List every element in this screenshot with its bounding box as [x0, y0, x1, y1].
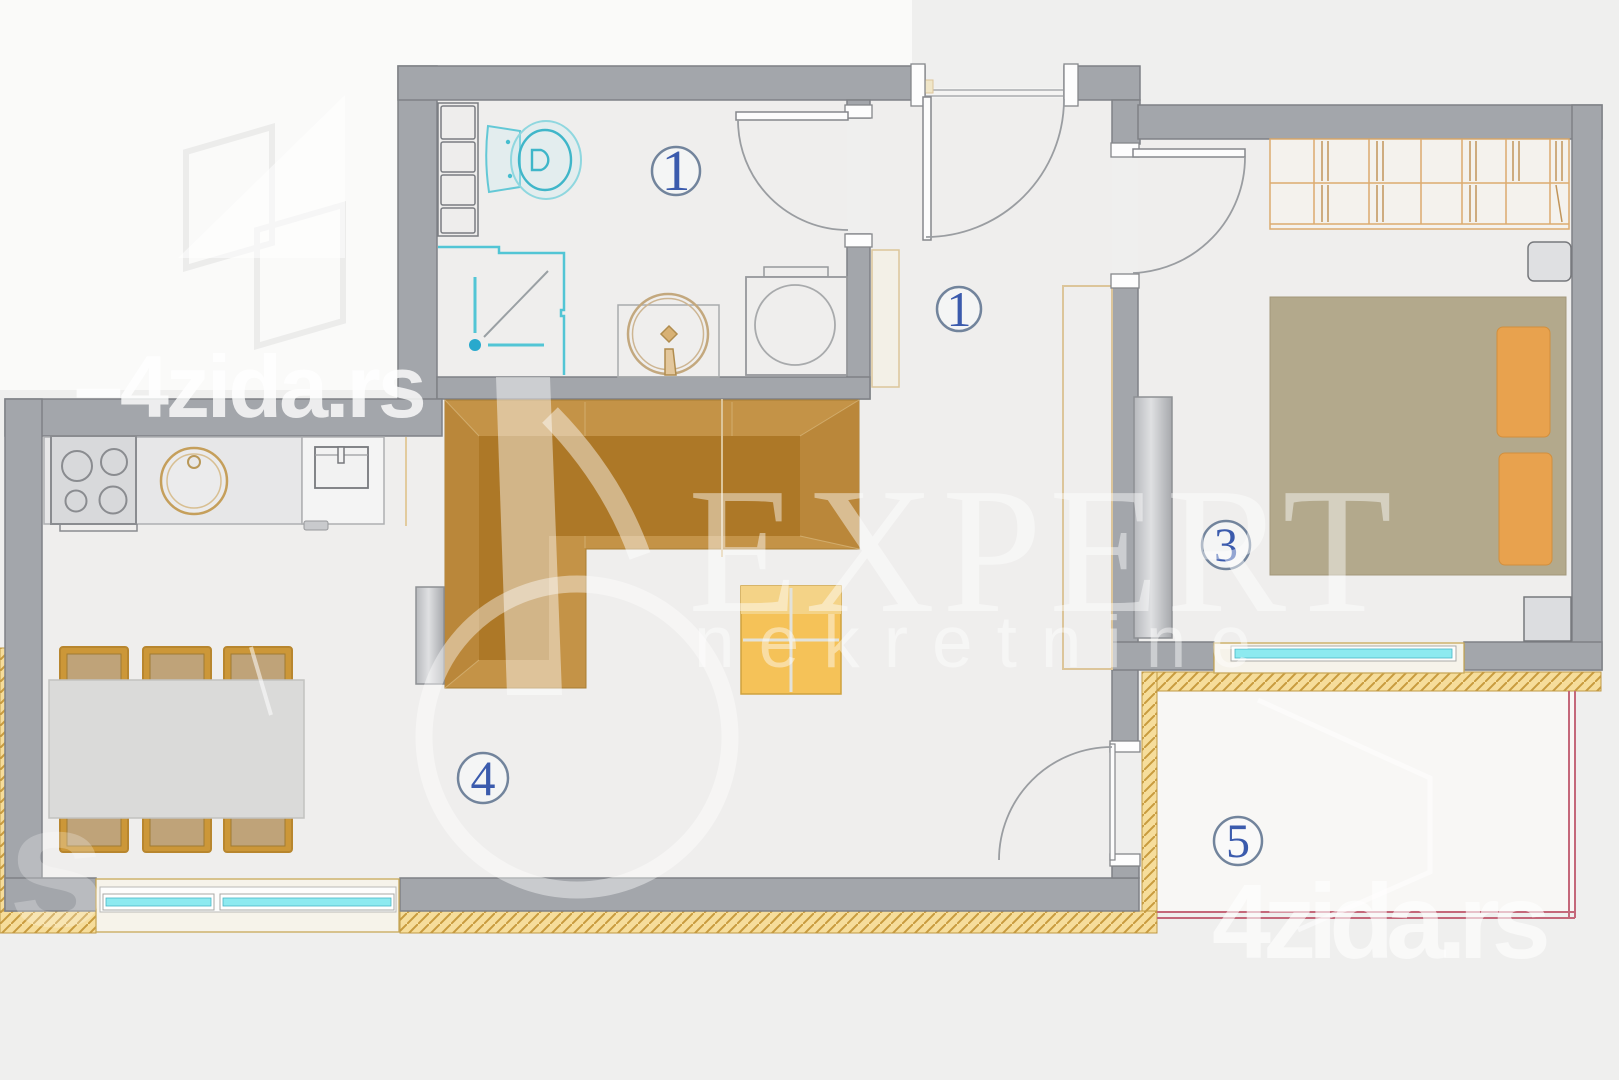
svg-text:4zida.rs: 4zida.rs — [1212, 863, 1547, 981]
svg-text:s: s — [8, 769, 105, 964]
svg-text:4: 4 — [471, 750, 496, 806]
svg-text:nekretnine: nekretnine — [694, 602, 1275, 683]
svg-text:–4zida.rs: –4zida.rs — [74, 337, 424, 436]
svg-text:5: 5 — [1226, 815, 1250, 868]
svg-text:1: 1 — [662, 138, 691, 203]
svg-text:1: 1 — [947, 281, 972, 337]
